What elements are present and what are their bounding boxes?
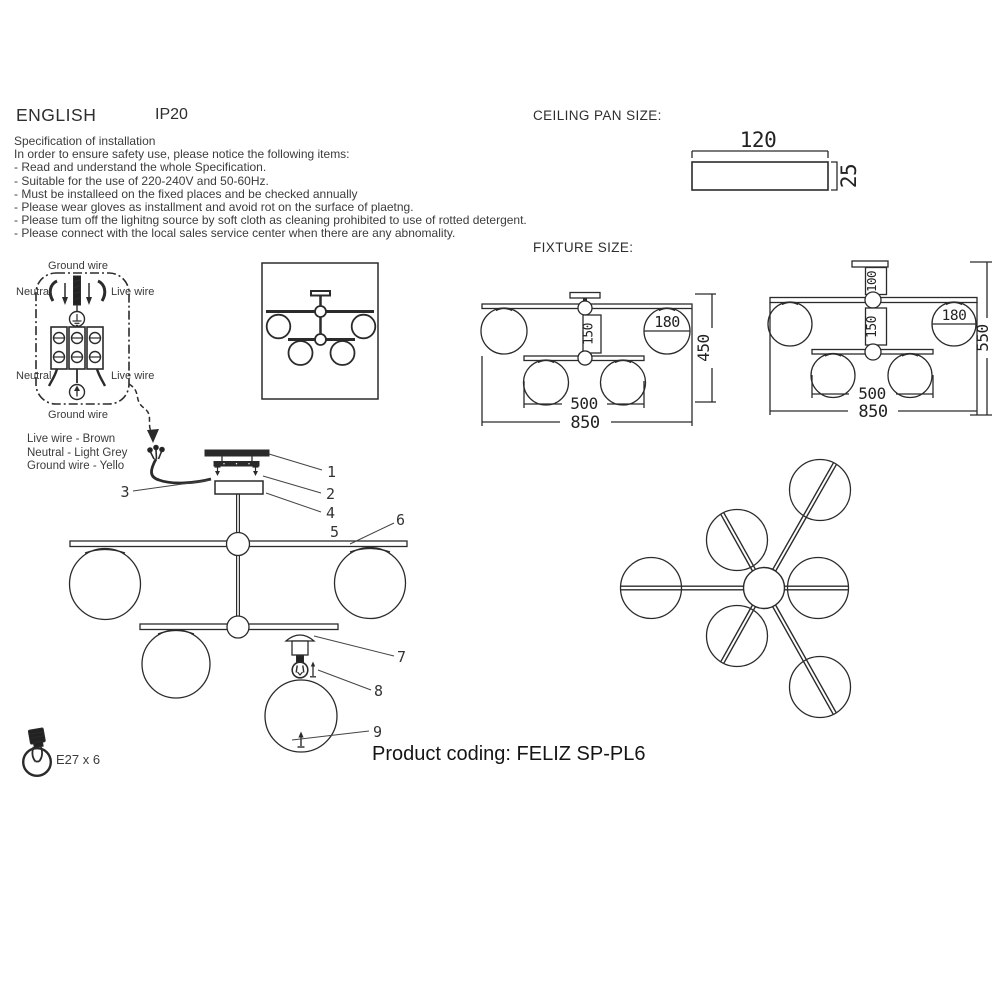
ceiling-pan-width-dim: 120 <box>740 128 776 152</box>
part-number-7: 7 <box>397 648 406 666</box>
part-number-9: 9 <box>373 723 382 741</box>
front-outer-span-dim: 850 <box>570 413 599 433</box>
wiring-ground-bottom-label: Ground wire <box>48 409 108 421</box>
front-height-dim: 450 <box>694 334 713 361</box>
side-height-dim: 550 <box>973 324 992 351</box>
screw-icon-small <box>310 662 316 677</box>
part-number-3: 3 <box>120 483 129 501</box>
wiring-live-bottom-label: Live wire <box>111 370 154 382</box>
part-number-1: 1 <box>327 463 336 481</box>
ceiling-pan-size-label: CEILING PAN SIZE: <box>533 108 662 123</box>
front-globe-dim: 180 <box>654 313 680 331</box>
wire-color-legend: Live wire - Brown Neutral - Light Grey G… <box>27 433 127 474</box>
bulb-part <box>292 656 308 678</box>
spec-item: - Please connect with the local sales se… <box>14 227 527 240</box>
side-rod-dim: 150 <box>865 316 880 338</box>
front-rod-dim: 150 <box>582 323 597 345</box>
terminal-block <box>51 327 103 369</box>
dashed-arrow-head <box>147 429 159 443</box>
fixture-size-label: FIXTURE SIZE: <box>533 240 633 255</box>
side-outer-span-dim: 850 <box>858 402 887 422</box>
part-number-6: 6 <box>396 511 405 529</box>
fixture-front-view: 150 180 500 850 <box>481 293 716 434</box>
side-top-rod-dim: 100 <box>864 271 879 292</box>
front-inner-span-dim: 500 <box>570 394 597 413</box>
mini-fixture-box <box>262 263 378 399</box>
bulb-spec: E27 x 6 <box>56 752 100 767</box>
side-globe-dim: 180 <box>942 308 967 324</box>
wiring-neutral-bottom-label: Neutral <box>16 370 51 382</box>
product-coding: Product coding: FELIZ SP-PL6 <box>372 743 645 766</box>
language-heading: ENGLISH <box>16 105 96 126</box>
lamp-socket-cup <box>286 635 314 655</box>
wiring-neutral-top-label: Neutral <box>16 286 51 298</box>
fixture-side-view: 100 150 180 500 850 <box>768 261 992 422</box>
ceiling-plate <box>205 450 269 456</box>
spec-item: - Suitable for the use of 220-240V and 5… <box>14 175 527 188</box>
wiring-diagram: Ground wire Neutral Live wire Neutral Li… <box>16 260 159 443</box>
wiring-live-top-label: Live wire <box>111 286 154 298</box>
part-number-4: 4 <box>326 504 335 522</box>
canopy <box>215 481 263 494</box>
top-view-drawing <box>620 460 851 718</box>
bulb-icon <box>23 728 51 776</box>
specification-block: Specification of installation In order t… <box>14 135 527 241</box>
top-view-hub <box>744 568 785 609</box>
assembly-drawing: 1 2 3 4 5 6 7 8 9 <box>70 445 408 752</box>
spec-item: - Read and understand the whole Specific… <box>14 161 527 174</box>
supply-wires <box>148 445 211 483</box>
side-inner-span-dim: 500 <box>858 384 885 403</box>
ip-rating: IP20 <box>155 106 188 124</box>
legend-ground: Ground wire - Yello <box>27 460 127 474</box>
legend-live: Live wire - Brown <box>27 433 127 447</box>
ceiling-pan-thickness-dim: 25 <box>837 164 861 188</box>
part-number-5: 5 <box>330 523 339 541</box>
wiring-ground-top-label: Ground wire <box>48 260 108 272</box>
installation-sheet: 120 25 150 180 <box>0 0 1000 1000</box>
ceiling-pan-drawing: 120 25 <box>692 128 861 190</box>
legend-neutral: Neutral - Light Grey <box>27 447 127 461</box>
part-number-2: 2 <box>326 485 335 503</box>
part-number-8: 8 <box>374 682 383 700</box>
